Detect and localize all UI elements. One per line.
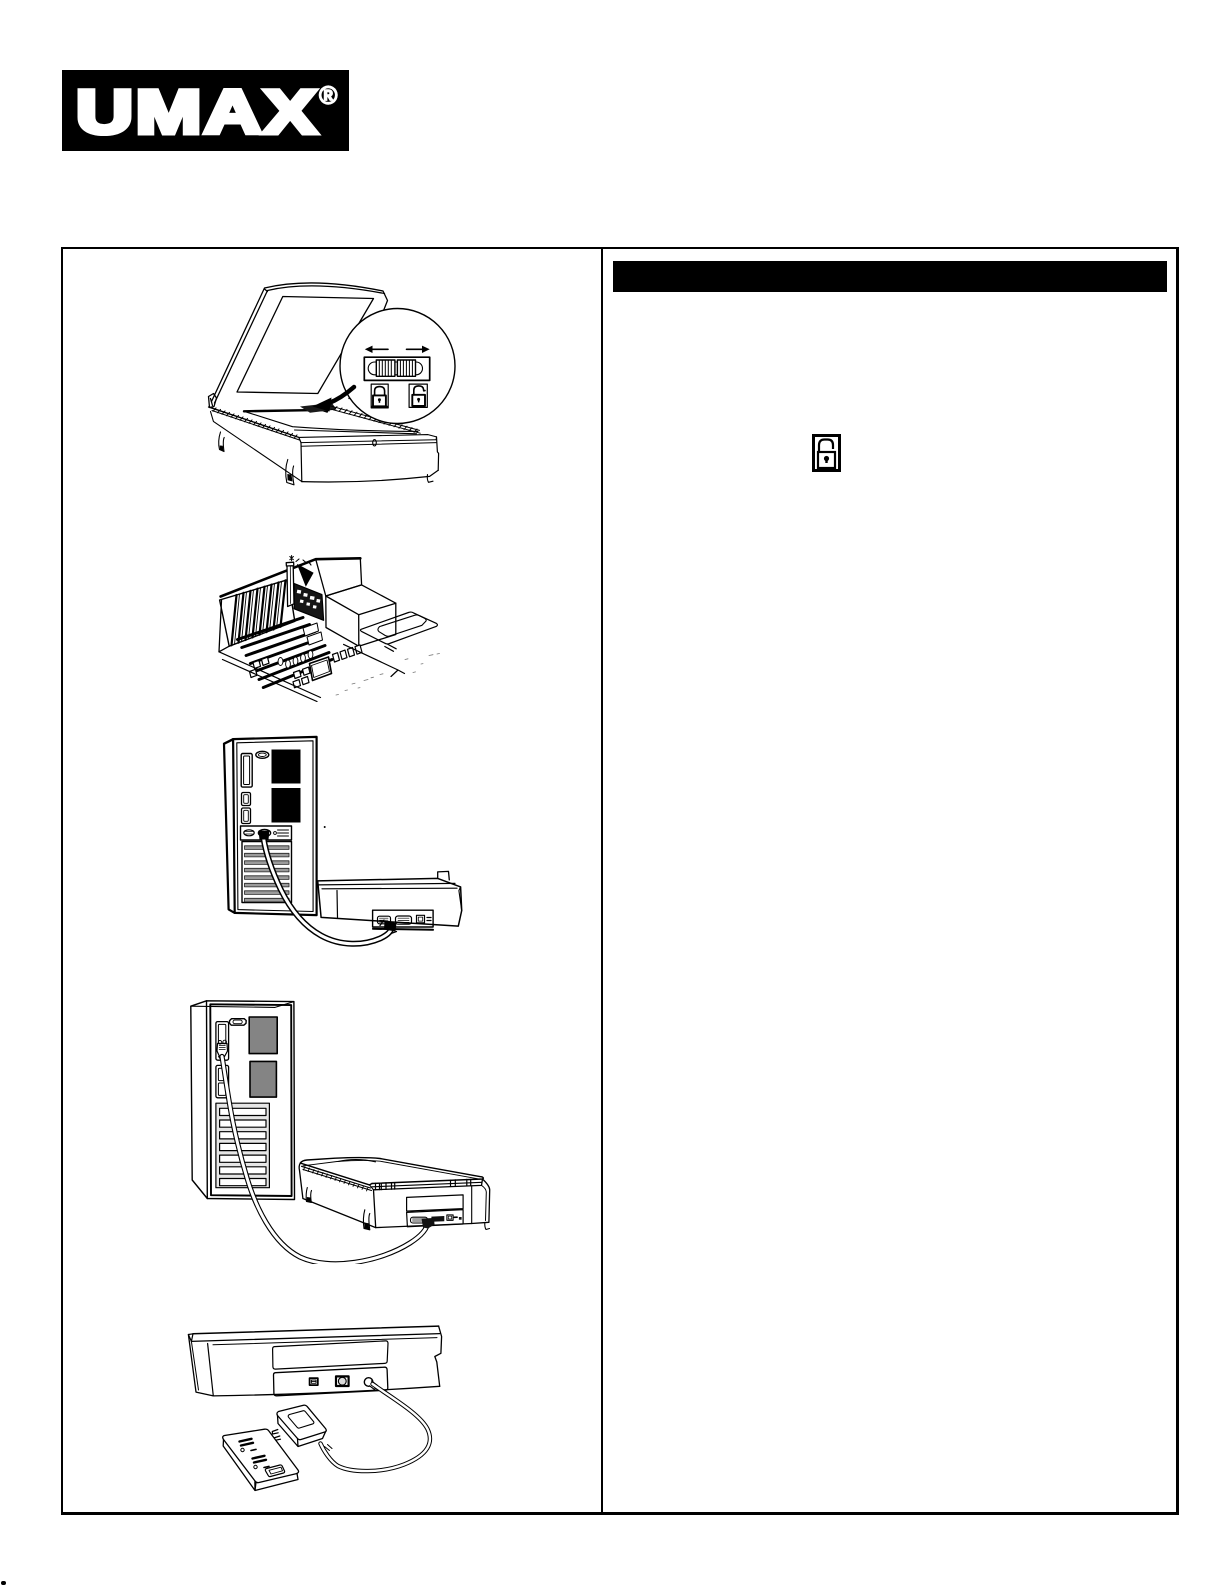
- svg-text:®: ®: [319, 82, 338, 110]
- svg-text:UMAX: UMAX: [76, 78, 319, 146]
